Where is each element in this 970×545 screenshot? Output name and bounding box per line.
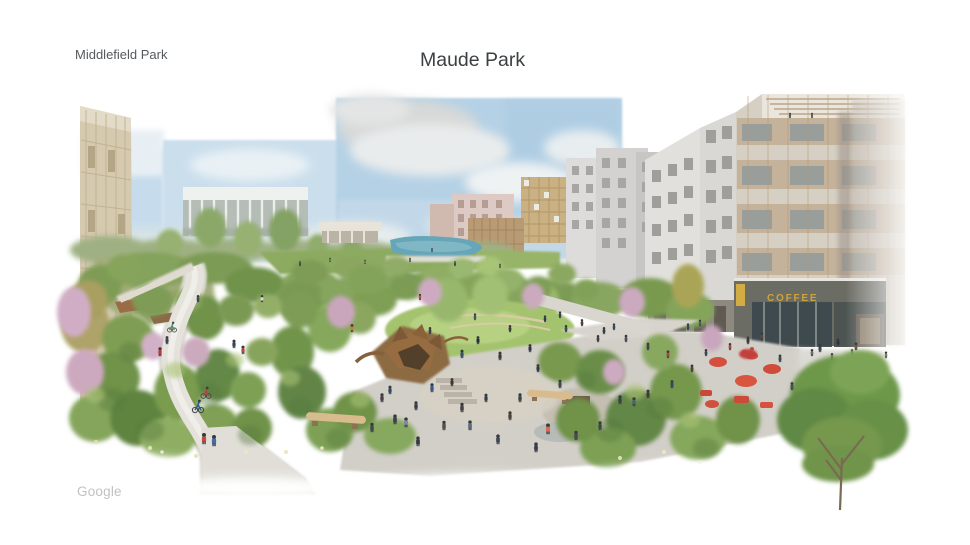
svg-text:Maude Park: Maude Park [420, 49, 525, 71]
svg-text:Middlefield Park: Middlefield Park [75, 47, 168, 62]
svg-text:COFFEE: COFFEE [767, 293, 818, 304]
svg-text:Google: Google [77, 484, 122, 499]
